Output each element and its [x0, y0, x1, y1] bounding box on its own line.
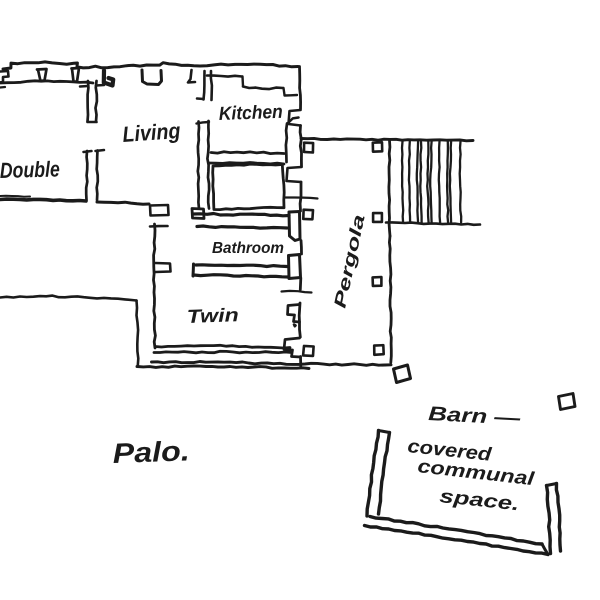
svg-text:Double: Double [0, 156, 60, 183]
svg-text:Pergola: Pergola [330, 213, 368, 310]
svg-text:Barn —: Barn — [428, 403, 522, 430]
svg-text:Living: Living [122, 118, 182, 147]
svg-text:Kitchen: Kitchen [218, 102, 283, 125]
svg-text:Bathroom: Bathroom [212, 240, 284, 257]
svg-text:space.: space. [438, 486, 520, 515]
svg-text:Twin: Twin [186, 305, 239, 328]
svg-text:Palo.: Palo. [112, 435, 190, 469]
